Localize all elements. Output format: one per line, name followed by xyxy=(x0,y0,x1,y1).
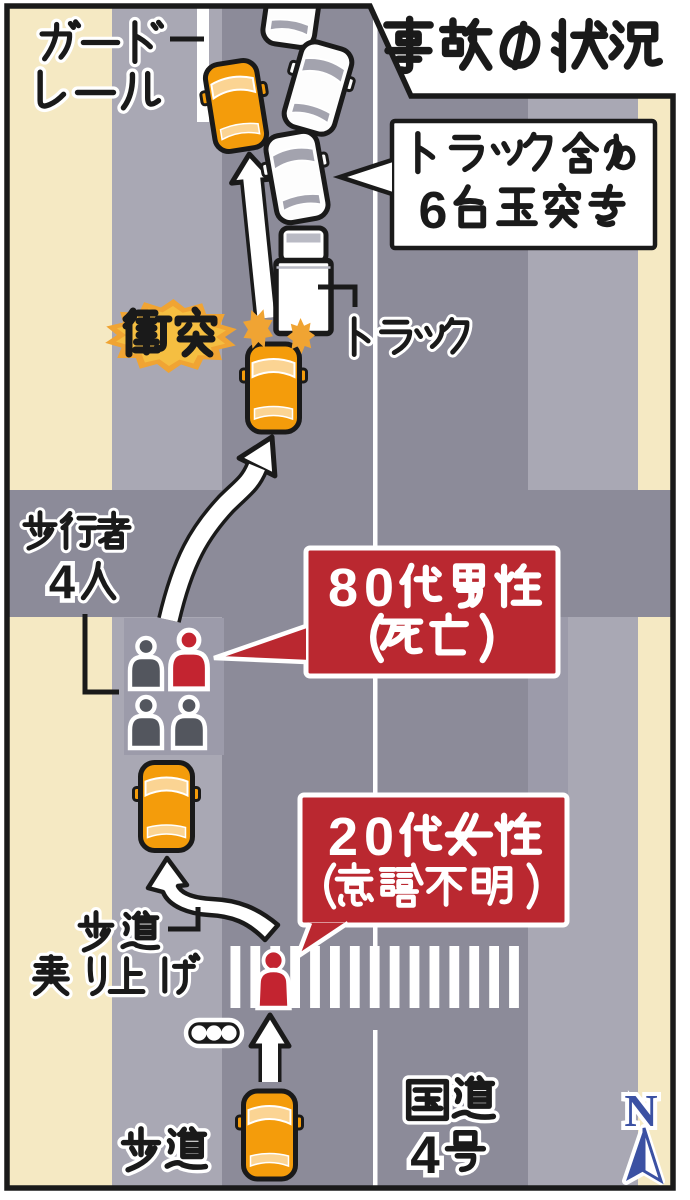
svg-text:0: 0 xyxy=(364,807,394,867)
svg-text:2: 2 xyxy=(328,807,358,867)
svg-text:8: 8 xyxy=(328,558,358,618)
svg-text:N: N xyxy=(624,1085,657,1136)
svg-text:6: 6 xyxy=(419,182,448,240)
svg-text:0: 0 xyxy=(364,558,394,618)
svg-text:4: 4 xyxy=(49,555,75,608)
svg-text:4: 4 xyxy=(410,1126,440,1185)
